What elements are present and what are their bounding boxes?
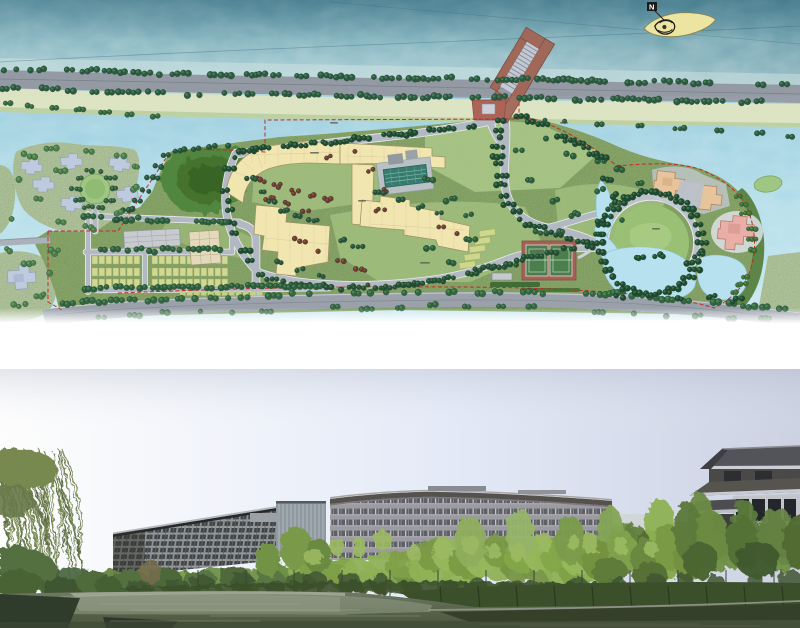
svg-text:N: N xyxy=(649,3,654,12)
